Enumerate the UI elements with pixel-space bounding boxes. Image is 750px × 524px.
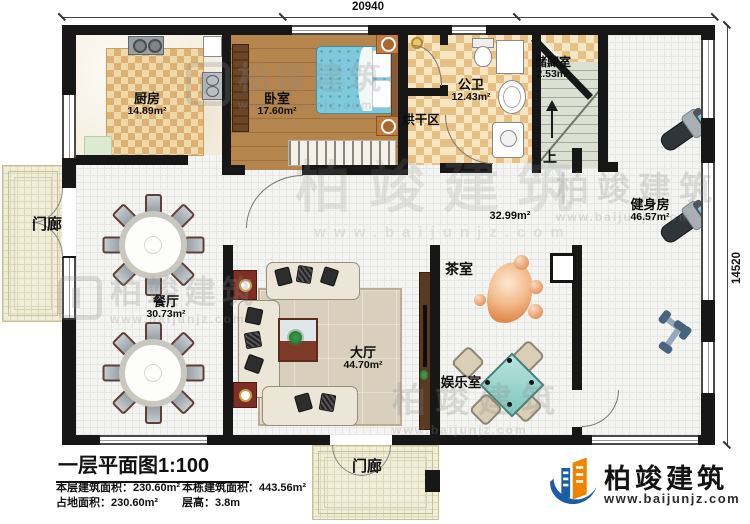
shower-head bbox=[500, 130, 517, 147]
wall bbox=[572, 148, 582, 173]
dimension-top: 20940 bbox=[328, 1, 408, 13]
sink-bowl bbox=[206, 75, 219, 86]
dimension-line-top bbox=[62, 17, 715, 18]
stairs-up-label: 上 bbox=[541, 150, 559, 165]
wall bbox=[62, 25, 715, 35]
brand-logo-icon bbox=[543, 454, 599, 510]
wall bbox=[223, 245, 233, 435]
room-name: 厨房 bbox=[134, 91, 160, 106]
room-name: 公卫 bbox=[458, 77, 484, 92]
stove-burner bbox=[133, 39, 147, 53]
dining-table-set bbox=[97, 317, 209, 429]
tea-seat bbox=[528, 304, 543, 319]
toilet-bowl bbox=[474, 46, 492, 67]
wall bbox=[572, 427, 582, 435]
sofa-pillow bbox=[296, 265, 313, 284]
wall bbox=[302, 165, 398, 175]
sink-bowl bbox=[206, 86, 219, 97]
room-area: 44.70m² bbox=[328, 360, 398, 372]
stairs-arrow-shaft bbox=[551, 110, 553, 138]
room-name: 门廊 bbox=[352, 458, 382, 475]
room-name: 健身房 bbox=[630, 197, 669, 212]
window bbox=[592, 435, 698, 445]
room-name: 储藏室 bbox=[535, 55, 571, 69]
mahjong-corner-dot bbox=[529, 380, 534, 385]
cabinet-knob bbox=[239, 389, 252, 402]
round-table bbox=[119, 211, 187, 279]
table-plant bbox=[289, 331, 302, 344]
window bbox=[701, 163, 715, 300]
wall bbox=[440, 163, 492, 173]
window bbox=[100, 435, 207, 445]
stat-total-area: 本栋建筑面积：443.56m² bbox=[182, 479, 306, 495]
room-label-porch-left: 门廊 bbox=[22, 217, 72, 234]
fridge bbox=[203, 36, 222, 57]
mahjong-corner-dot bbox=[507, 402, 512, 407]
dimension-right: 14520 bbox=[731, 245, 743, 291]
wall bbox=[598, 35, 608, 172]
plan-title: 一层平面图1:100 bbox=[56, 449, 249, 483]
room-area: 2.53m² bbox=[518, 69, 588, 81]
mahjong-corner-dot bbox=[507, 358, 512, 363]
room-name: 餐厅 bbox=[153, 294, 179, 309]
stat-floor-height: 层高：3.8m bbox=[182, 494, 240, 510]
round-table bbox=[119, 339, 187, 407]
chair bbox=[145, 276, 162, 296]
room-area: 14.89m² bbox=[112, 106, 182, 118]
wall bbox=[76, 155, 188, 165]
window bbox=[292, 25, 368, 35]
wall bbox=[231, 165, 245, 175]
room-label-storage: 储藏室 2.53m² bbox=[518, 56, 588, 81]
chair bbox=[185, 365, 205, 382]
window bbox=[452, 25, 486, 35]
nightstand-lamp bbox=[381, 37, 396, 52]
bed-pillow bbox=[372, 80, 391, 108]
tea-seat bbox=[514, 255, 529, 270]
room-name: 烘干区 bbox=[402, 113, 440, 127]
wardrobe bbox=[232, 44, 249, 132]
sofa-pillow bbox=[319, 393, 337, 412]
dimension-line-right bbox=[727, 25, 728, 445]
bed-pillow bbox=[372, 50, 391, 78]
chair bbox=[145, 404, 162, 424]
cabinet-knob bbox=[239, 279, 252, 292]
room-area: 46.57m² bbox=[615, 212, 685, 224]
wall bbox=[222, 35, 231, 175]
wall bbox=[398, 35, 408, 175]
room-name: 娱乐室 bbox=[441, 375, 482, 390]
tea-seat bbox=[474, 294, 486, 306]
stat-floor-area: 本层建筑面积：230.60m² bbox=[56, 479, 180, 495]
room-label-tea: 茶室 bbox=[434, 262, 484, 277]
room-name: 大厅 bbox=[350, 345, 376, 360]
room-label-kitchen: 厨房 14.89m² bbox=[112, 92, 182, 118]
corridor-area-label: 32.99m² bbox=[480, 210, 540, 222]
room-label-hall: 大厅 44.70m² bbox=[328, 346, 398, 372]
room-name: 门廊 bbox=[32, 216, 62, 233]
floor-plan-canvas: 柏竣建筑 www.baijunjz.com 柏竣建筑 www.baijunjz.… bbox=[0, 0, 750, 524]
room-area: 12.43m² bbox=[436, 92, 506, 104]
room-area: 30.73m² bbox=[131, 309, 201, 321]
sofa-pillow bbox=[244, 331, 263, 350]
room-name: 卧室 bbox=[264, 91, 290, 106]
stat-land-area: 占地面积：230.60m² bbox=[56, 494, 158, 510]
chair bbox=[185, 237, 205, 254]
building-swoosh-icon bbox=[543, 454, 599, 510]
room-label-bathroom: 公卫 12.43m² bbox=[436, 78, 506, 104]
window bbox=[701, 342, 715, 393]
door-opening bbox=[330, 435, 392, 445]
stove-burner bbox=[148, 39, 162, 53]
room-label-dining: 餐厅 30.73m² bbox=[131, 295, 201, 321]
up-text: 上 bbox=[543, 149, 557, 165]
window bbox=[62, 258, 76, 318]
room-label-entertainment: 娱乐室 bbox=[426, 376, 496, 391]
room-area: 17.60m² bbox=[242, 106, 312, 118]
tv bbox=[423, 305, 427, 367]
window bbox=[701, 40, 715, 118]
brand-website: www.baijunjz.com bbox=[604, 491, 740, 506]
dining-table-set bbox=[97, 189, 209, 301]
room-label-gym: 健身房 46.57m² bbox=[615, 198, 685, 224]
wall bbox=[440, 35, 448, 45]
wall bbox=[598, 162, 618, 172]
room-name: 茶室 bbox=[445, 261, 473, 277]
wall-niche bbox=[550, 253, 576, 283]
room-label-bedroom: 卧室 17.60m² bbox=[242, 92, 312, 118]
bedroom-rug bbox=[288, 140, 396, 166]
window bbox=[62, 95, 76, 158]
room-area: 32.99m² bbox=[490, 210, 531, 222]
room-label-drying: 烘干区 bbox=[391, 114, 451, 128]
kitchen-mat bbox=[84, 136, 112, 157]
porch-pillar bbox=[425, 470, 440, 492]
sofa-pillow bbox=[245, 307, 264, 326]
room-label-porch-bottom: 门廊 bbox=[342, 459, 392, 476]
stairs-arrow-head bbox=[546, 100, 558, 111]
bed-sheet-fold bbox=[358, 47, 372, 111]
tea-seat bbox=[529, 280, 543, 294]
